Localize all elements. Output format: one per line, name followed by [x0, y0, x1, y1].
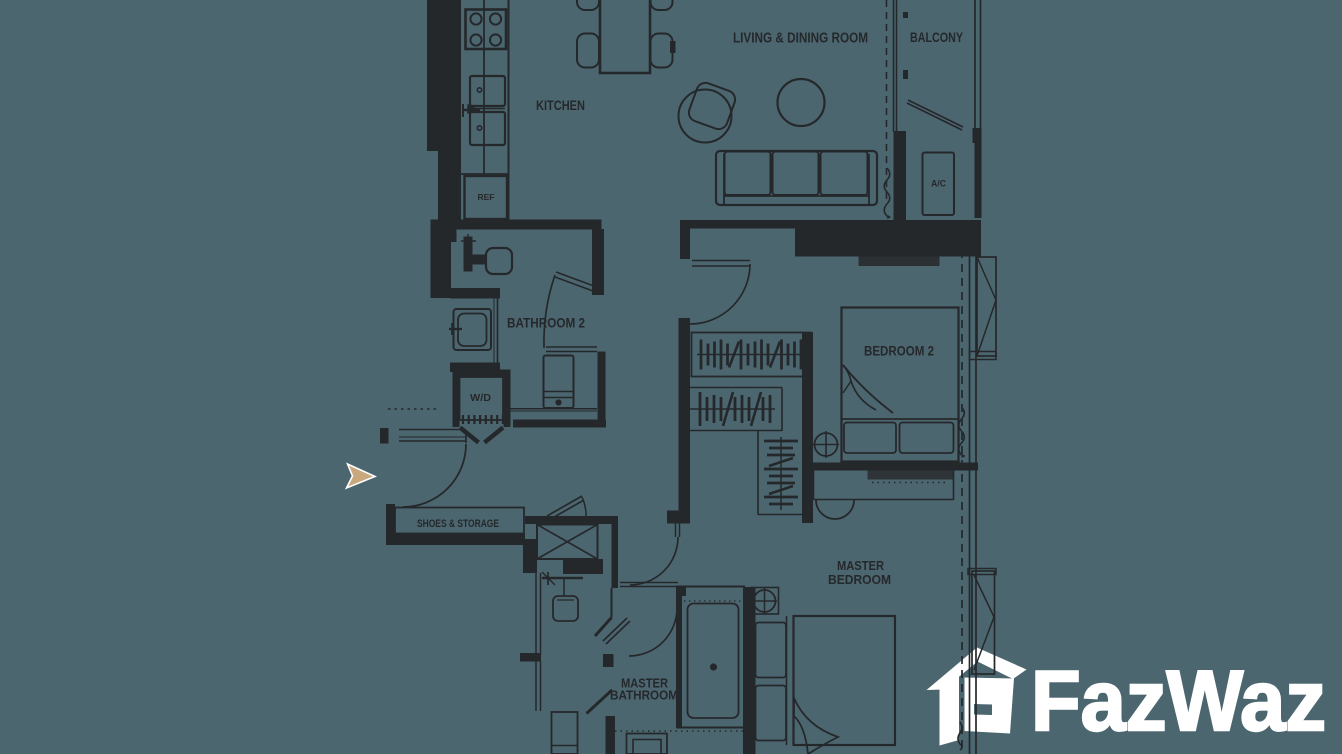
svg-text:A/C: A/C — [931, 179, 946, 189]
svg-text:W/D: W/D — [470, 393, 491, 404]
svg-text:KITCHEN: KITCHEN — [536, 98, 585, 113]
svg-text:BATHROOM 2: BATHROOM 2 — [507, 316, 585, 331]
svg-text:LIVING & DINING ROOM: LIVING & DINING ROOM — [733, 31, 868, 47]
svg-text:BATHROOM: BATHROOM — [610, 688, 678, 703]
svg-text:BEDROOM: BEDROOM — [828, 572, 891, 587]
svg-text:FazWaz: FazWaz — [1031, 654, 1326, 749]
svg-text:BEDROOM 2: BEDROOM 2 — [864, 344, 934, 359]
svg-text:SHOES & STORAGE: SHOES & STORAGE — [417, 518, 499, 530]
svg-text:MASTER: MASTER — [837, 558, 885, 573]
svg-text:REF: REF — [478, 192, 495, 202]
svg-text:BALCONY: BALCONY — [910, 30, 963, 45]
